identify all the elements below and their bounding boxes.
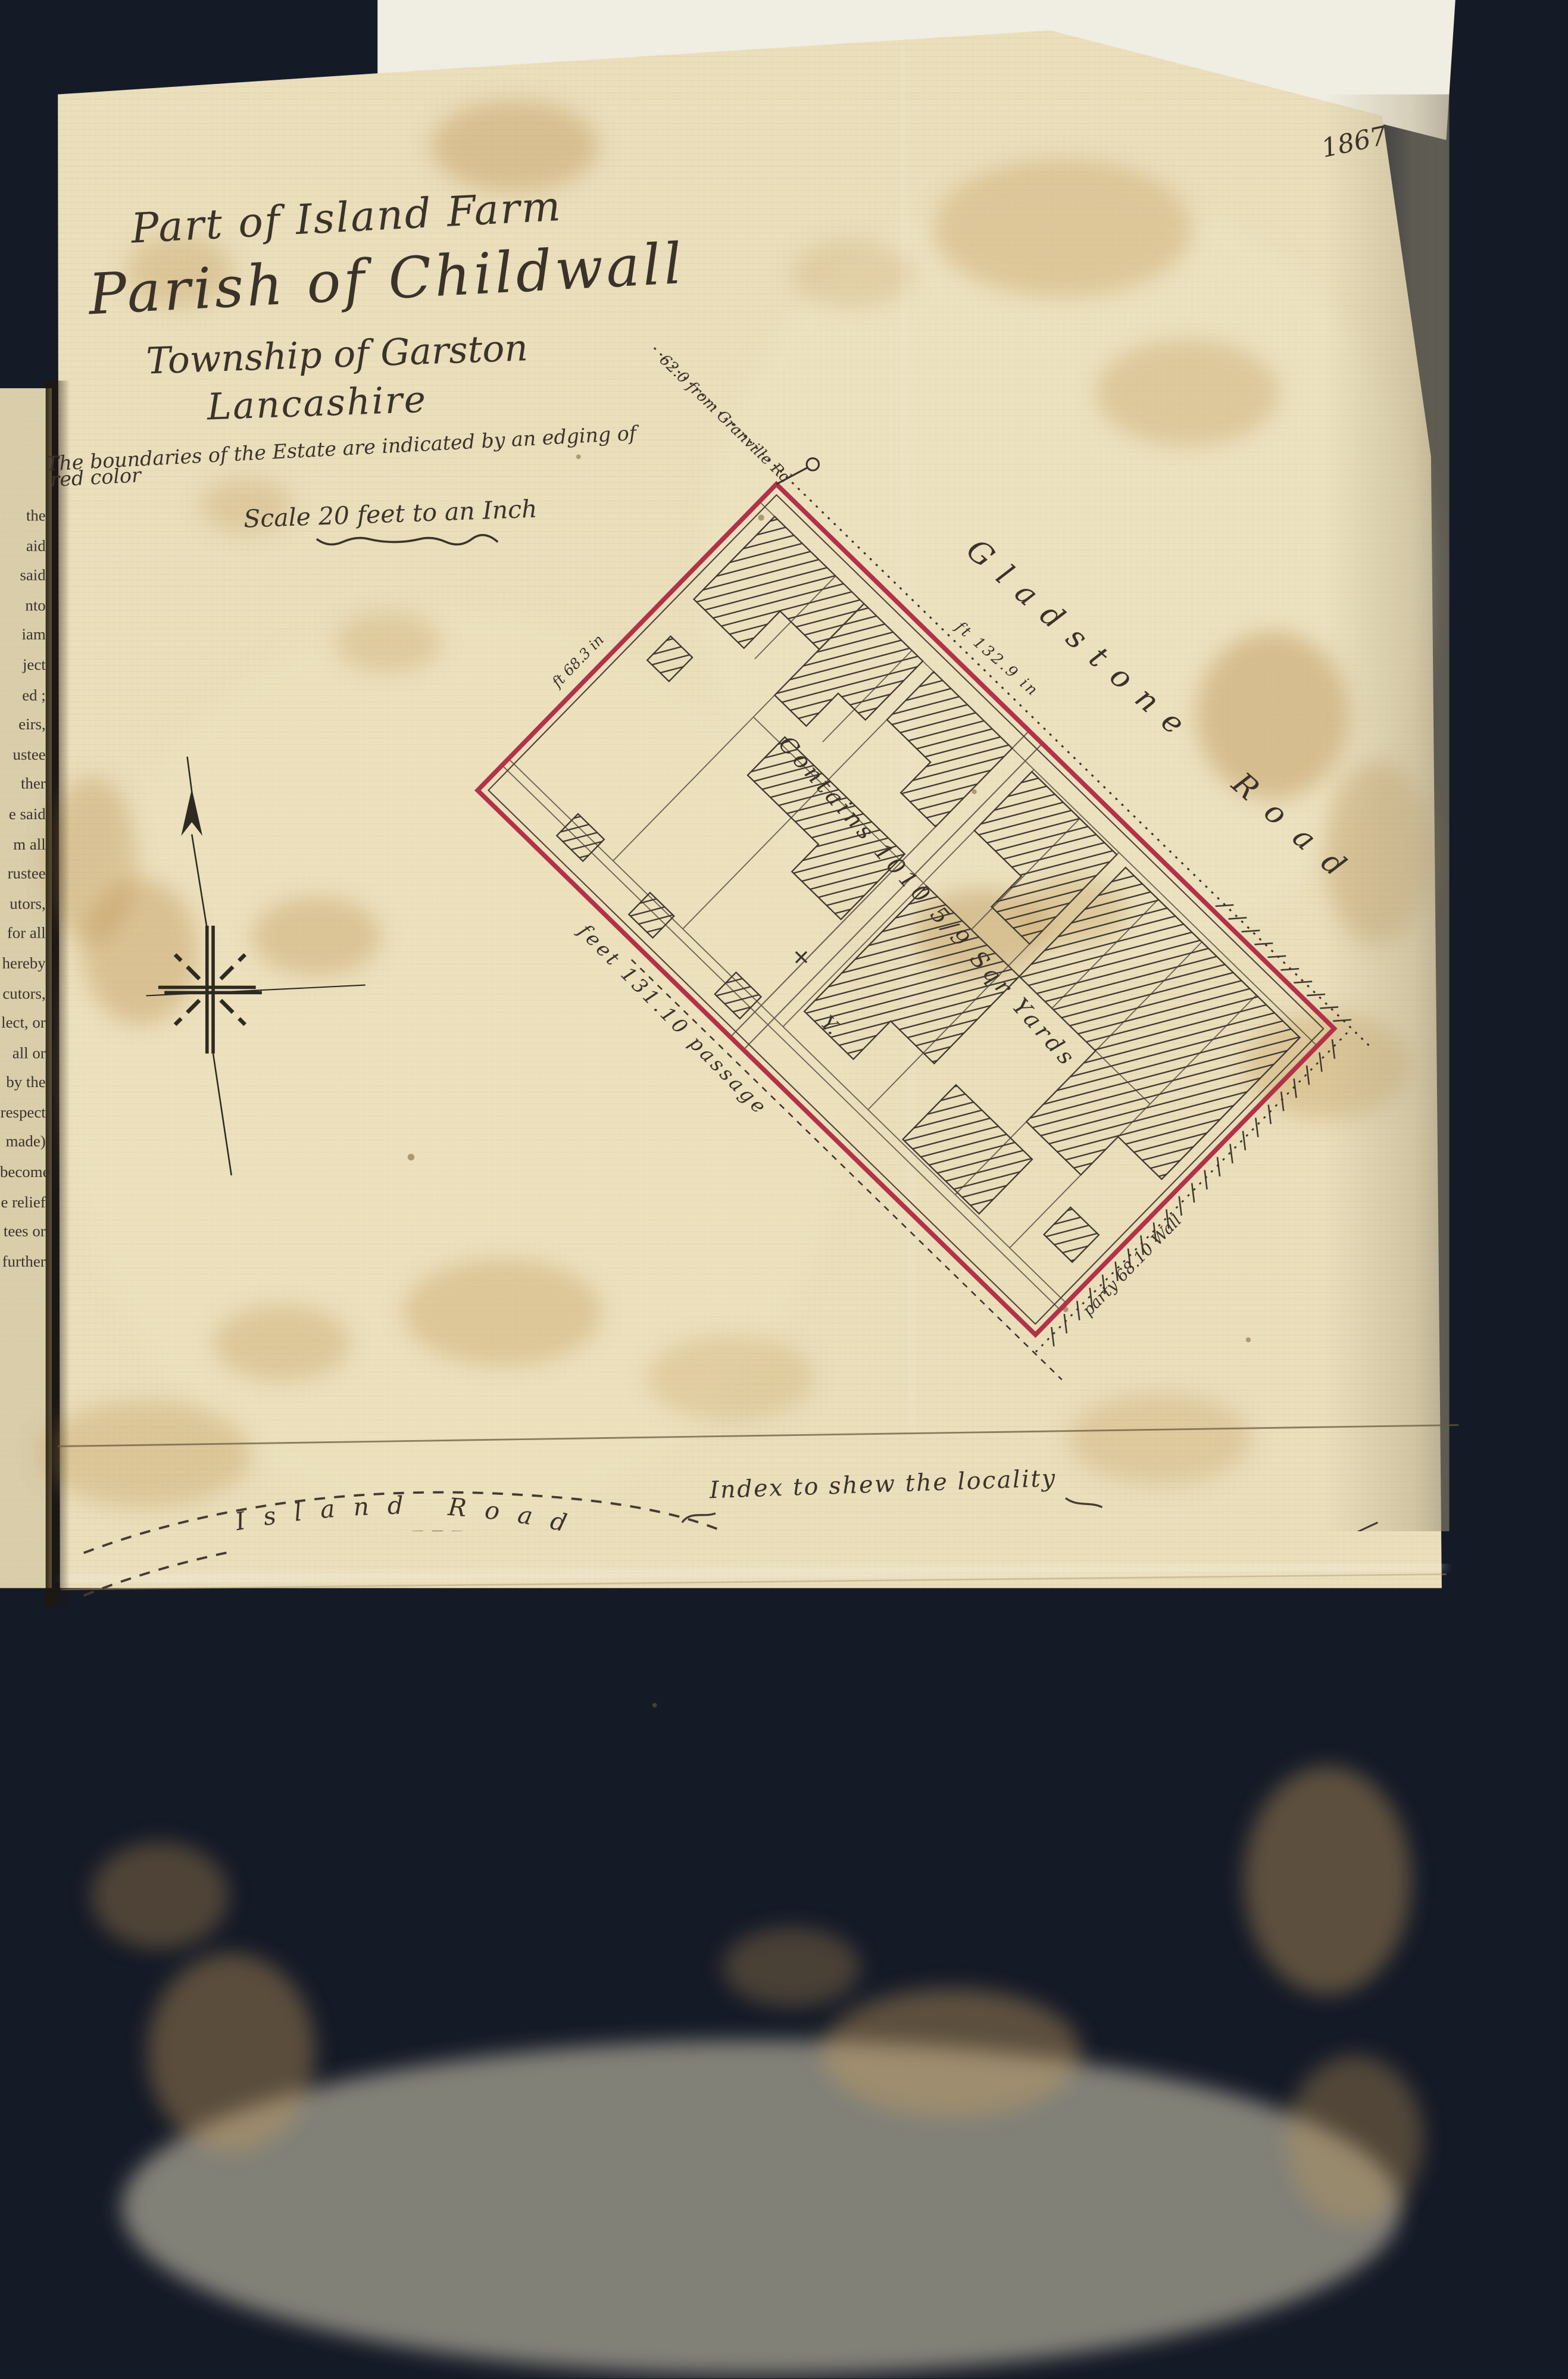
signature-address: 22 Lord St Liverpool	[1188, 2067, 1436, 2108]
signature-name: Thos Childs	[1139, 2110, 1439, 2155]
book-page-text-fragments: the aid said nto iam ject ed ; eirs, ust…	[0, 502, 46, 1278]
book-gutter-shadow	[46, 380, 70, 2284]
signature-title: Secy	[1279, 2154, 1442, 2189]
scan-stage: Gladstone Road ft 132.9 in 62.0 from Gra…	[0, 0, 1568, 2378]
photo-of-archive-page: Gladstone Road ft 132.9 in 62.0 from Gra…	[0, 0, 1568, 2379]
title-line-4: Lancashire	[207, 378, 428, 428]
boundary-note-line-2: red color	[49, 465, 141, 492]
signature-block: Liverpool Land Co Lim 22 Lord St Liverpo…	[1133, 2024, 1444, 2218]
